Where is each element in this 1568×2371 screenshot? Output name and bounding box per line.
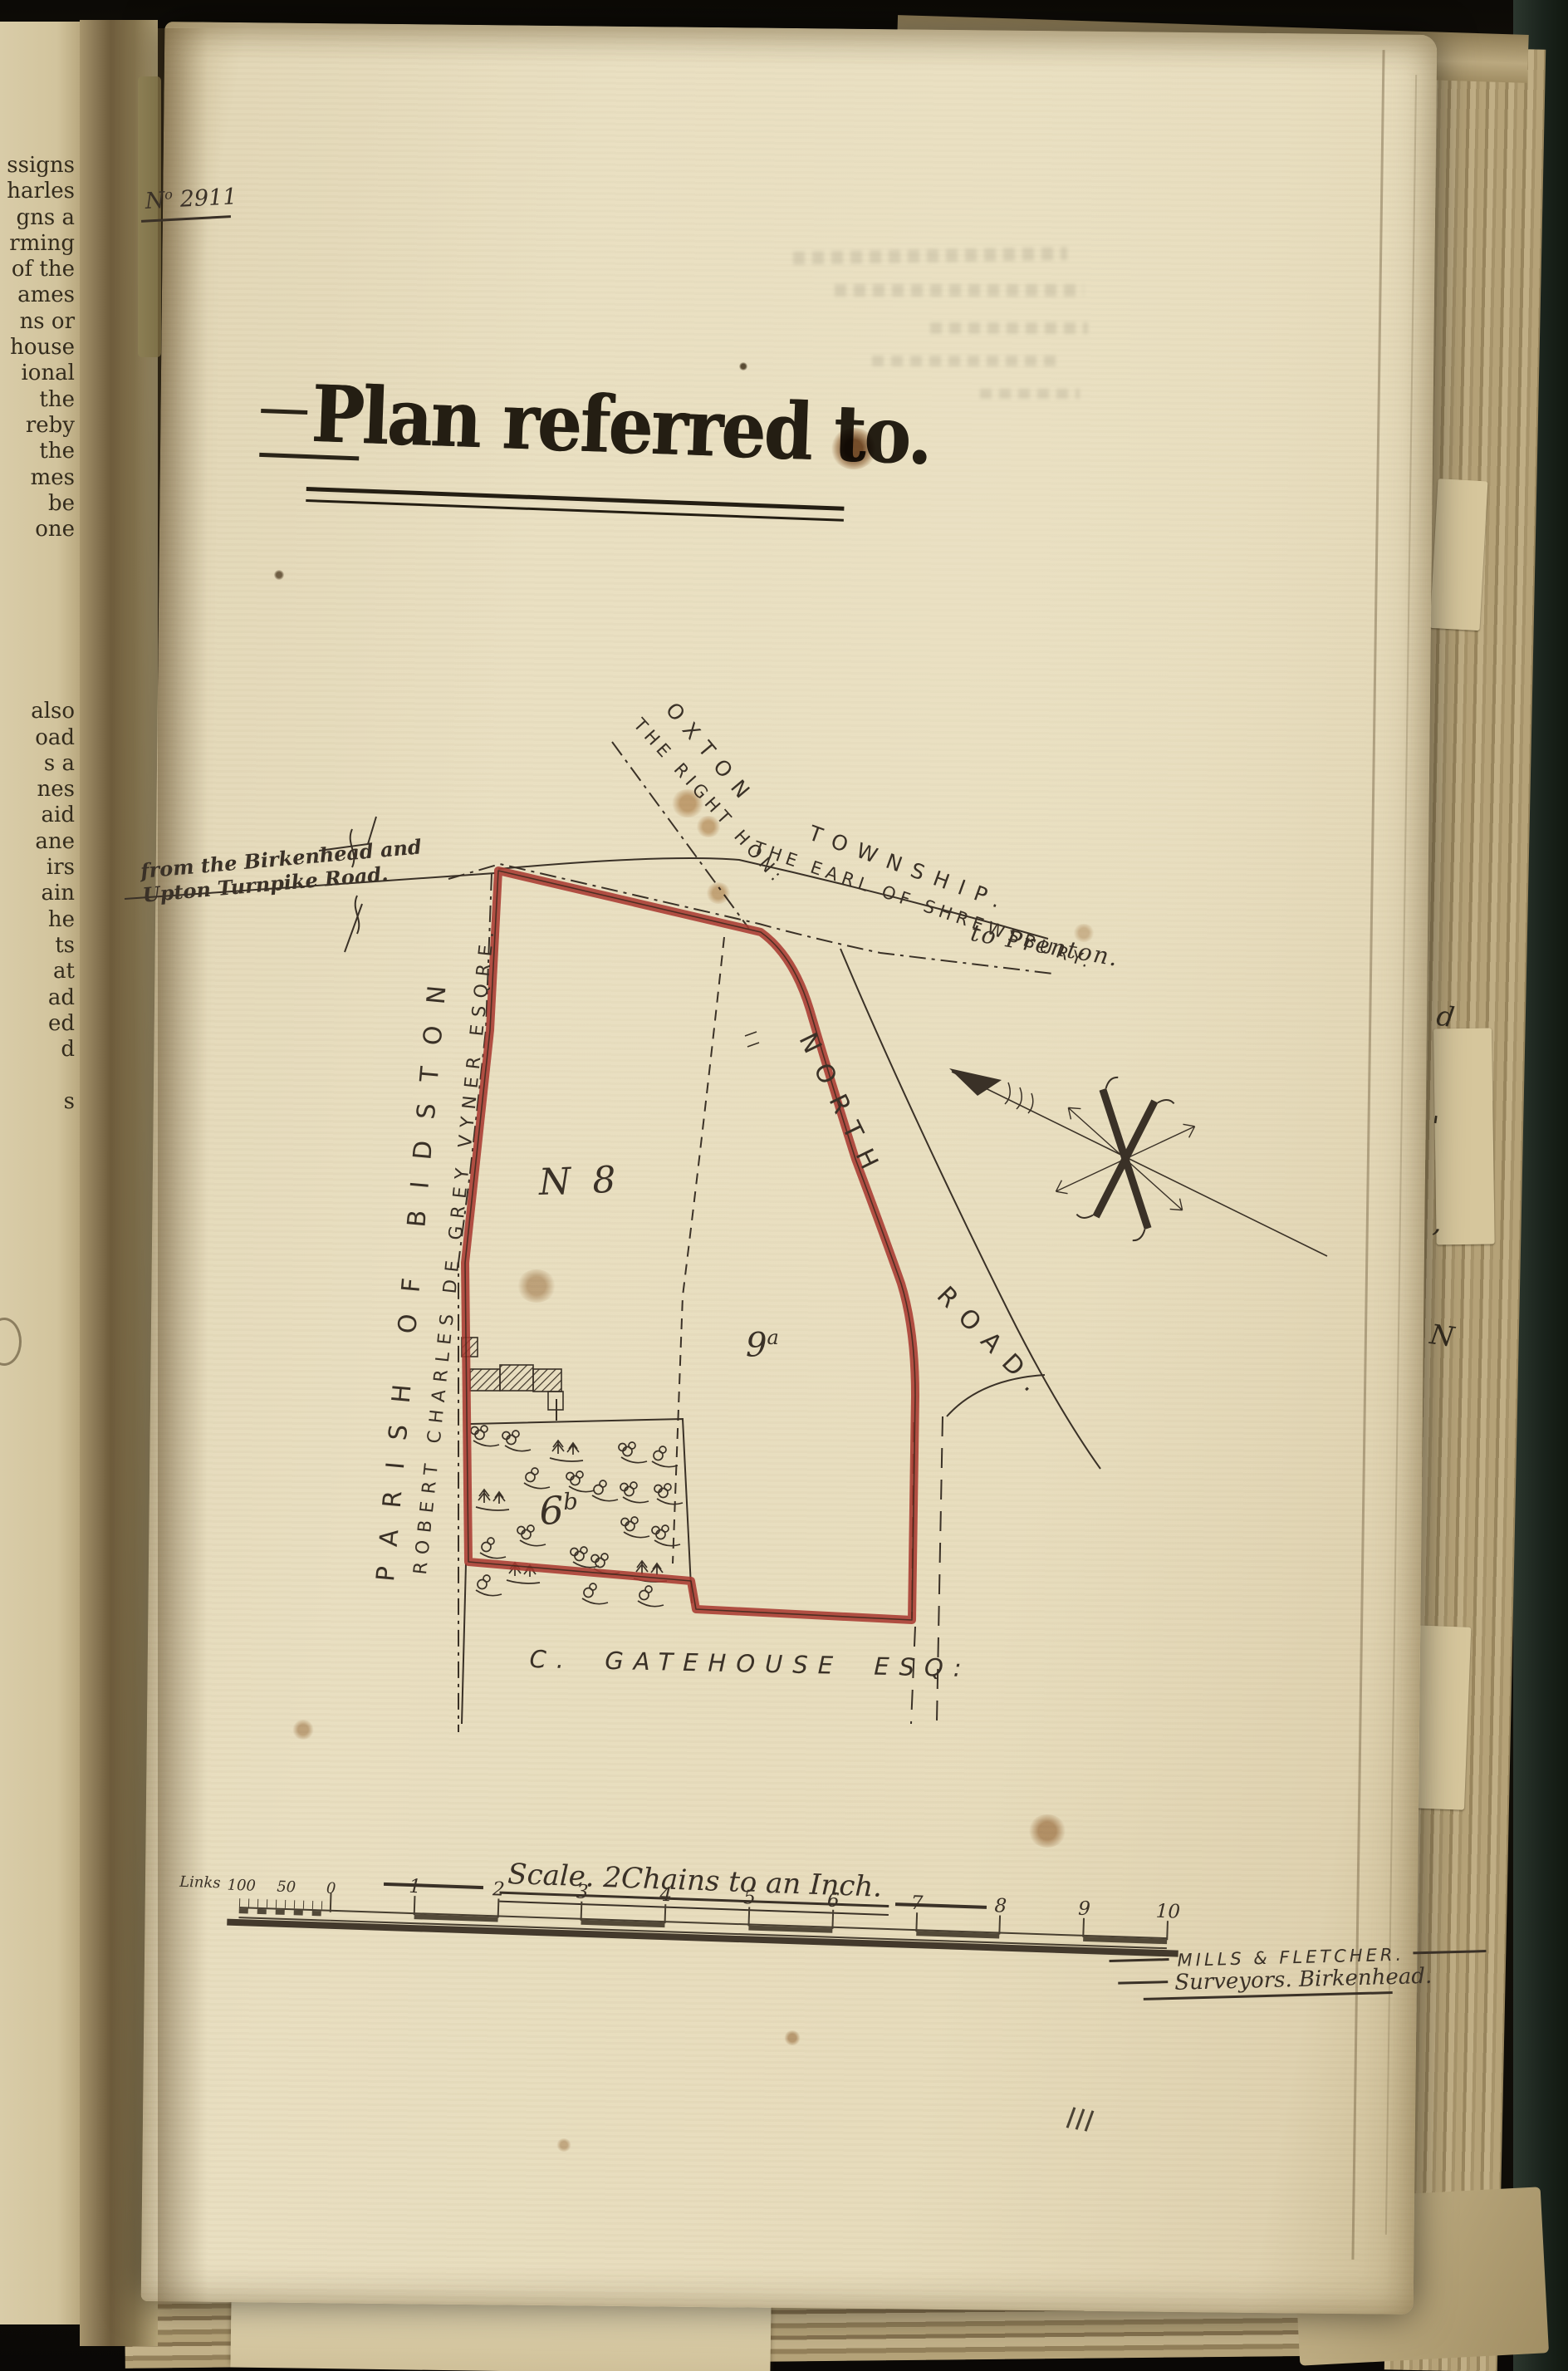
parcel-divider-dashed [673, 937, 724, 1563]
plan-drawing [0, 0, 1568, 2371]
tree-symbol [654, 1484, 683, 1505]
scanned-book-photo: ssignsharlesgns armingof theamesns orhou… [0, 0, 1568, 2371]
gate-marks [745, 1032, 759, 1047]
tree-symbol [480, 1538, 506, 1559]
tree-symbol [638, 1586, 664, 1607]
tree-symbol [652, 1446, 678, 1467]
tree-symbol [652, 1525, 680, 1546]
tree-symbol [620, 1482, 649, 1503]
conifer-tree-symbol [550, 1441, 583, 1461]
conifer-tree-symbol [476, 1490, 509, 1510]
tree-symbol [566, 1471, 595, 1492]
road-lines [125, 817, 1100, 1724]
tree-symbol [471, 1426, 499, 1446]
tree-symbol [524, 1468, 550, 1489]
edge-handwriting-fragment: N [1428, 1318, 1456, 1353]
tree-symbol [619, 1442, 647, 1463]
tree-symbol [592, 1480, 618, 1501]
buildings [462, 1338, 563, 1421]
parcel-boundary-red [465, 871, 915, 1620]
tree-symbol [476, 1575, 502, 1596]
township-boundary-dashdot [448, 742, 1053, 1732]
tree-symbol [582, 1583, 608, 1604]
tree-symbol [517, 1525, 546, 1546]
tree-symbol [571, 1547, 599, 1568]
tree-symbol [502, 1431, 531, 1451]
compass-north-arrow [949, 1061, 1327, 1257]
tree-symbol [621, 1517, 649, 1538]
